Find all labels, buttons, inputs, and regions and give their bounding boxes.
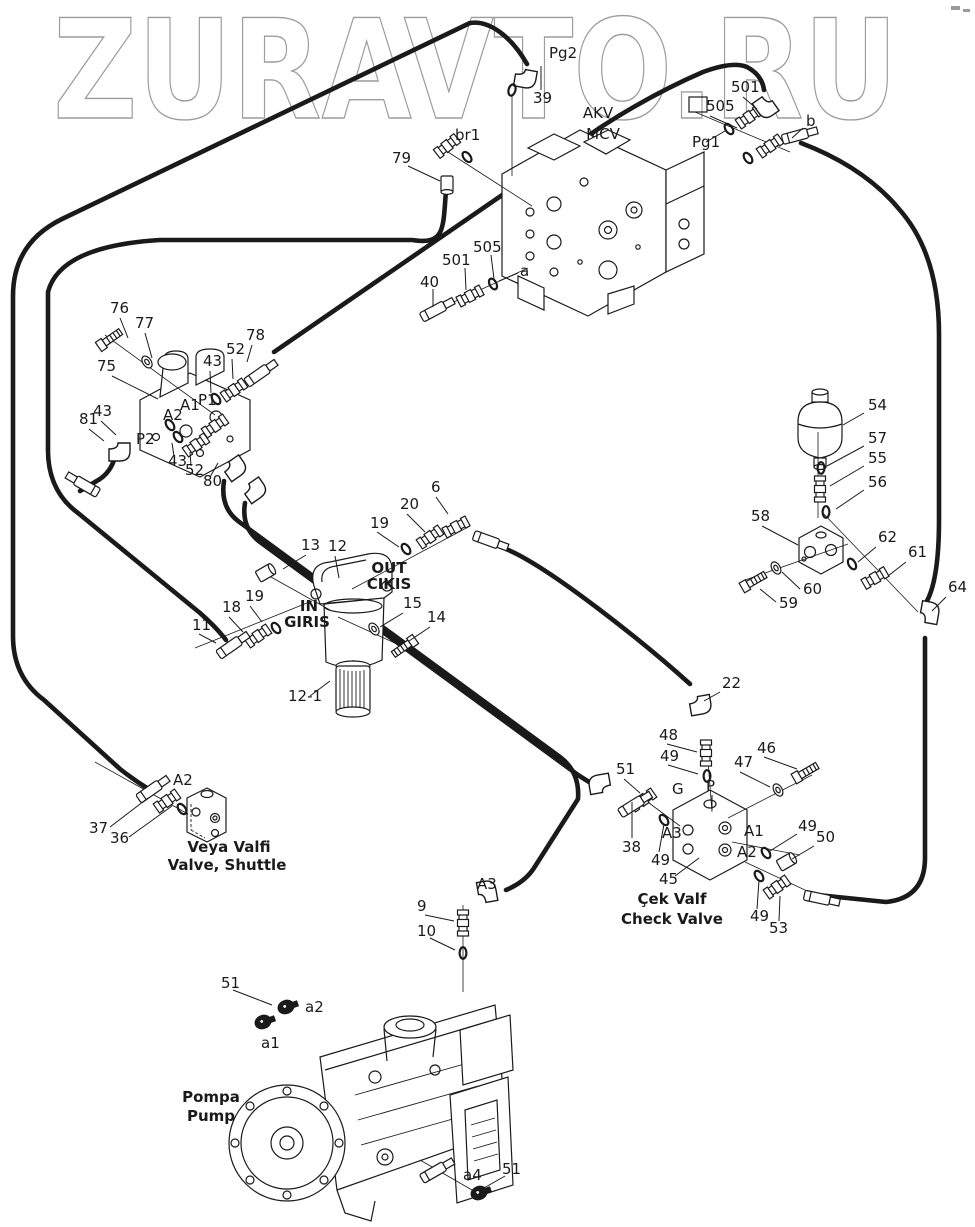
clamp-fitting bbox=[253, 1012, 276, 1031]
part-label-51: 51 bbox=[502, 1160, 521, 1178]
part-label-a2: a2 bbox=[305, 998, 324, 1016]
part-label-38: 38 bbox=[622, 838, 641, 856]
oring-fitting bbox=[742, 151, 754, 164]
leader-line bbox=[250, 606, 262, 622]
sleeve-fitting bbox=[244, 358, 279, 387]
leader-line bbox=[425, 915, 454, 921]
nipple-fitting bbox=[458, 910, 469, 936]
part-label-52: 52 bbox=[226, 340, 245, 358]
part-label-46: 46 bbox=[757, 739, 776, 757]
part-label-p1: P1 bbox=[198, 391, 217, 409]
part-label-53: 53 bbox=[769, 919, 788, 937]
part-label-13: 13 bbox=[301, 536, 320, 554]
part-label-49: 49 bbox=[798, 817, 817, 835]
part-label-valve-shuttle: Valve, Shuttle bbox=[168, 856, 287, 874]
sleeve-fitting bbox=[803, 890, 840, 907]
leader-line bbox=[408, 166, 440, 181]
part-label-55: 55 bbox=[868, 449, 887, 467]
part-label-veya-valfi: Veya Valfi bbox=[187, 838, 270, 856]
leader-line bbox=[229, 617, 243, 632]
leader-line bbox=[110, 798, 148, 827]
corner-mark bbox=[951, 6, 970, 12]
part-label-52: 52 bbox=[185, 461, 204, 479]
leader-line bbox=[830, 466, 864, 486]
part-label-36: 36 bbox=[110, 829, 129, 847]
part-label-56: 56 bbox=[868, 473, 887, 491]
leader-line bbox=[764, 757, 797, 769]
part-label-pg2: Pg2 bbox=[549, 44, 577, 62]
shuttle-valve-drawing bbox=[187, 788, 226, 842]
part-label-20: 20 bbox=[400, 495, 419, 513]
leader-line bbox=[843, 413, 864, 425]
part-label-mcv: MCV bbox=[586, 125, 620, 143]
oring-fitting bbox=[176, 802, 188, 815]
sleeve-fitting bbox=[419, 296, 455, 322]
elbow-fitting bbox=[241, 477, 269, 504]
leader-line bbox=[624, 779, 640, 793]
check-valve-drawing bbox=[673, 790, 747, 880]
part-label-pg1: Pg1 bbox=[692, 133, 720, 151]
leader-line bbox=[760, 589, 776, 602]
part-label-77: 77 bbox=[135, 314, 154, 332]
part-label-9: 9 bbox=[417, 897, 427, 915]
part-label-50: 50 bbox=[816, 828, 835, 846]
elbow-fitting bbox=[588, 773, 612, 794]
nipple-fitting bbox=[456, 285, 484, 307]
part-label-22: 22 bbox=[722, 674, 741, 692]
part-label-12-1: 12-1 bbox=[288, 687, 322, 705]
part-label-39: 39 bbox=[533, 89, 552, 107]
bolt-fitting bbox=[791, 761, 820, 784]
part-label-a2: A2 bbox=[737, 843, 757, 861]
part-label-a1: A1 bbox=[744, 822, 764, 840]
hydraulic-hoses bbox=[13, 23, 939, 902]
part-label-49: 49 bbox=[660, 747, 679, 765]
part-label-akv: AKV bbox=[583, 104, 614, 122]
part-label-48: 48 bbox=[659, 726, 678, 744]
nipple-fitting bbox=[815, 476, 826, 502]
part-label-43: 43 bbox=[203, 352, 222, 370]
leader-line bbox=[757, 880, 759, 909]
part-label-a3: A3 bbox=[477, 875, 497, 893]
leader-line bbox=[770, 834, 797, 851]
leader-line bbox=[836, 490, 864, 509]
sleeve-fitting bbox=[419, 1157, 455, 1184]
leader-line bbox=[232, 359, 233, 379]
leader-line bbox=[740, 772, 770, 787]
part-label-64: 64 bbox=[948, 578, 967, 596]
part-label-a4: a4 bbox=[463, 1166, 482, 1184]
leader-line bbox=[762, 526, 798, 545]
hose-64-to-53 bbox=[808, 638, 925, 902]
part-label-62: 62 bbox=[878, 528, 897, 546]
clamp-fitting bbox=[276, 997, 299, 1016]
leader-line bbox=[858, 547, 876, 562]
part-label-a2: A2 bbox=[163, 406, 183, 424]
nipple-fitting bbox=[763, 875, 791, 899]
oring-fitting bbox=[846, 557, 858, 570]
part-label-60: 60 bbox=[803, 580, 822, 598]
leader-line bbox=[668, 765, 698, 774]
part-label-14: 14 bbox=[427, 608, 446, 626]
plug-fitting bbox=[441, 176, 453, 194]
part-label-61: 61 bbox=[908, 543, 927, 561]
leader-line bbox=[465, 268, 466, 290]
leader-line bbox=[89, 429, 104, 441]
part-label-cikis: CIKIS bbox=[367, 575, 412, 593]
part-label-giris: GIRIS bbox=[284, 613, 330, 631]
part-label-10: 10 bbox=[417, 922, 436, 940]
part-label-501: 501 bbox=[442, 251, 471, 269]
part-label-49: 49 bbox=[651, 851, 670, 869]
oring-fitting bbox=[400, 542, 412, 555]
accumulator-drawing bbox=[798, 389, 842, 470]
leader-line bbox=[247, 345, 252, 362]
part-label-78: 78 bbox=[246, 326, 265, 344]
sleeve-fitting bbox=[472, 531, 509, 553]
part-label-76: 76 bbox=[110, 299, 129, 317]
leader-line bbox=[782, 572, 800, 589]
part-label-19: 19 bbox=[370, 514, 389, 532]
part-label--ek-valf: Çek Valf bbox=[638, 890, 707, 908]
part-label-11: 11 bbox=[192, 616, 211, 634]
part-label-58: 58 bbox=[751, 507, 770, 525]
leader-line bbox=[145, 333, 152, 358]
nipple-fitting bbox=[861, 567, 889, 590]
leader-line bbox=[101, 421, 116, 435]
part-label-a: a bbox=[520, 262, 529, 280]
part-label-p: P bbox=[706, 777, 715, 795]
part-label-pump: Pump bbox=[187, 1107, 235, 1125]
elbow-fitting bbox=[919, 601, 940, 625]
part-label-6: 6 bbox=[431, 478, 441, 496]
elbow-fitting bbox=[689, 694, 713, 715]
nipple-fitting bbox=[416, 525, 444, 549]
part-label-br1: br1 bbox=[455, 126, 480, 144]
hose-filter-out-to-22 bbox=[506, 549, 690, 684]
leader-line bbox=[233, 990, 272, 1005]
part-label-54: 54 bbox=[868, 396, 887, 414]
leader-line bbox=[199, 634, 216, 643]
part-label-49: 49 bbox=[750, 907, 769, 925]
part-label-505: 505 bbox=[706, 97, 735, 115]
part-label-47: 47 bbox=[734, 753, 753, 771]
part-label-check-valve: Check Valve bbox=[621, 910, 723, 928]
leader-line bbox=[377, 532, 399, 547]
part-label-75: 75 bbox=[97, 357, 116, 375]
plug-fitting bbox=[776, 852, 798, 872]
part-label-57: 57 bbox=[868, 429, 887, 447]
part-label-pompa: Pompa bbox=[182, 1088, 240, 1106]
part-label-18: 18 bbox=[222, 598, 241, 616]
parts-diagram-page: ZURAVTO.RU bbox=[0, 0, 975, 1227]
part-label-37: 37 bbox=[89, 819, 108, 837]
leader-line bbox=[792, 846, 814, 859]
leader-line bbox=[491, 255, 494, 279]
part-label-a1: a1 bbox=[261, 1034, 280, 1052]
part-label-a3: A3 bbox=[662, 824, 682, 842]
part-label-40: 40 bbox=[420, 273, 439, 291]
elbow-fitting bbox=[109, 443, 130, 461]
nipple-fitting bbox=[701, 740, 712, 766]
nipple-fitting bbox=[442, 516, 470, 538]
part-label-19: 19 bbox=[245, 587, 264, 605]
part-label-51: 51 bbox=[616, 760, 635, 778]
leader-line bbox=[129, 806, 172, 837]
hose-80-to-a3 bbox=[223, 481, 578, 890]
leader-line bbox=[112, 376, 158, 399]
leader-line bbox=[407, 514, 425, 532]
part-label-501: 501 bbox=[731, 78, 760, 96]
part-label-b: b bbox=[806, 112, 816, 130]
part-label-59: 59 bbox=[779, 594, 798, 612]
mcv-valve-drawing bbox=[502, 130, 704, 316]
part-label-g: G bbox=[672, 780, 684, 798]
leader-line bbox=[779, 896, 780, 921]
part-label-a2: A2 bbox=[173, 771, 193, 789]
washer-fitting bbox=[771, 782, 785, 798]
part-label-51: 51 bbox=[221, 974, 240, 992]
bolt-fitting bbox=[95, 327, 123, 351]
part-label-45: 45 bbox=[659, 870, 678, 888]
part-label-80: 80 bbox=[203, 472, 222, 490]
accumulator-block-drawing bbox=[799, 526, 843, 574]
washer-fitting bbox=[769, 560, 783, 576]
part-label-a1: A1 bbox=[180, 396, 200, 414]
part-label-505: 505 bbox=[473, 238, 502, 256]
leader-line bbox=[888, 562, 906, 576]
part-label-p2: P2 bbox=[136, 430, 155, 448]
part-label-15: 15 bbox=[403, 594, 422, 612]
part-label-79: 79 bbox=[392, 149, 411, 167]
part-label-12: 12 bbox=[328, 537, 347, 555]
oring-fitting bbox=[760, 846, 772, 859]
bolt-fitting bbox=[739, 570, 768, 593]
plug-fitting bbox=[255, 563, 277, 583]
part-label-81: 81 bbox=[79, 410, 98, 428]
leader-line bbox=[436, 497, 448, 514]
